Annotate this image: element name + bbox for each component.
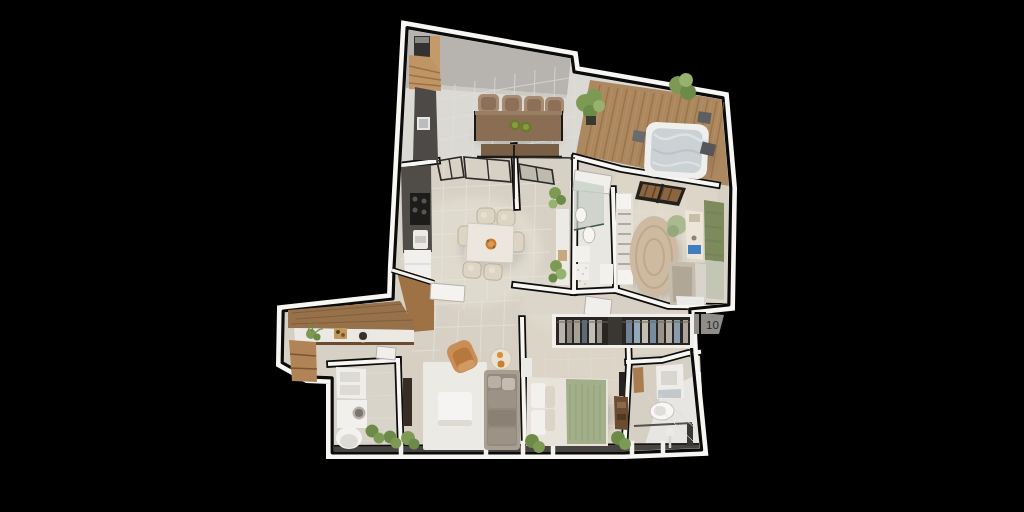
svg-text:10: 10 [706,319,719,331]
